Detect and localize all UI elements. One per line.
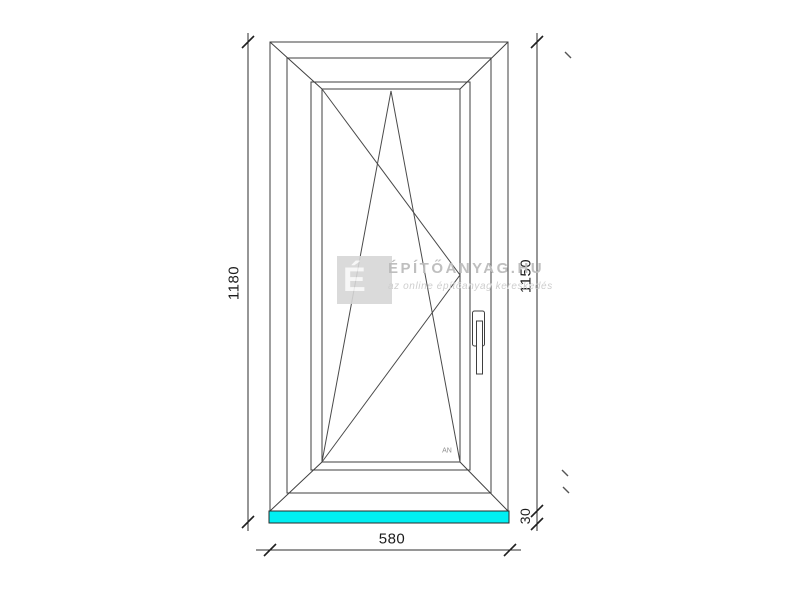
handle-grip xyxy=(477,321,483,374)
miter-top-left-line xyxy=(270,42,322,89)
dim-label-sill-height: 30 xyxy=(517,508,533,525)
watermark-logo-letter: É xyxy=(343,263,366,297)
opening-direction-label: AN xyxy=(442,448,452,455)
dim-label-width: 580 xyxy=(379,531,406,548)
dim-label-total-height: 1180 xyxy=(226,266,243,300)
window-sill xyxy=(269,511,509,523)
stray-mark-mid xyxy=(562,470,568,476)
miter-bottom-right-line xyxy=(460,462,508,511)
watermark-subtitle: az online építőanyag kereskedés xyxy=(388,281,553,292)
stray-mark-bottom xyxy=(563,487,569,493)
miter-bottom-left-line xyxy=(270,462,322,511)
window-technical-drawing xyxy=(0,0,800,600)
watermark-logo: É xyxy=(337,256,392,304)
product-drawing-page: 1180 1150 30 580 AN É ÉPÍTŐANYAG.HU az o… xyxy=(0,0,800,600)
stray-mark-top xyxy=(565,52,571,58)
miter-top-right-line xyxy=(460,42,508,89)
watermark-title: ÉPÍTŐANYAG.HU xyxy=(388,260,544,277)
